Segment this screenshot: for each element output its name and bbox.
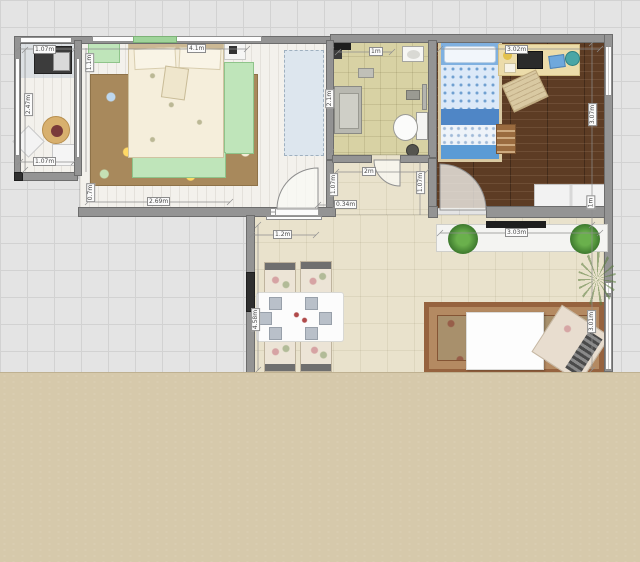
sink-basin: [407, 50, 420, 59]
desk-papers: [504, 63, 516, 73]
wall-bath-bottom-right: [400, 155, 430, 163]
double-bed[interactable]: [128, 40, 224, 158]
kids-bed-duvet: [441, 65, 499, 109]
wall-bath-kids: [428, 40, 437, 158]
dim-label-balcony-top: 1.07m: [33, 45, 56, 54]
kitchen-sink: [53, 52, 70, 71]
wall-kids-bottom-stub: [428, 206, 438, 218]
curtain-strip: [133, 36, 177, 43]
placemat: [259, 312, 272, 325]
dim-label-wall-gap: 0.34m: [334, 200, 357, 209]
dim-label-bath-width: 1m: [369, 47, 383, 56]
dim-label-living-wall: 4.58m: [251, 308, 260, 331]
wall-top-right: [330, 34, 612, 43]
dim-label-divider-top: 1.1m: [85, 53, 94, 72]
divider-window: [76, 58, 80, 158]
bath-cabinet[interactable]: [358, 68, 374, 78]
notebook: [548, 54, 566, 69]
tv[interactable]: [486, 221, 546, 228]
chair-backrest: [301, 364, 331, 371]
wall-dining-left-dark: [246, 272, 255, 312]
bedroom-top-window: [92, 36, 262, 42]
dining-chair-2[interactable]: [300, 261, 332, 295]
chair-backrest: [265, 263, 295, 270]
dim-label-console: 3.03m: [505, 228, 528, 237]
wall-balcony-bottom: [14, 172, 78, 181]
wall-corner-block: [14, 172, 23, 181]
placemat: [269, 297, 282, 310]
placemat: [319, 312, 332, 325]
balcony-top-window: [20, 37, 72, 43]
wall-bath-bottom-left: [332, 155, 372, 163]
kids-bed[interactable]: [438, 38, 502, 162]
dim-label-balcony-height: 2.47m: [24, 93, 33, 116]
kids-bed-pillow: [444, 46, 496, 63]
dim-label-living-height: 3.01m: [587, 310, 596, 333]
dim-label-hall-right: 1.07m: [416, 171, 425, 194]
dining-chair-4[interactable]: [300, 338, 332, 372]
entry-closet-floor: [284, 50, 324, 156]
dim-label-divider-bottom: 0.7m: [86, 183, 95, 202]
kids-bed-band: [441, 109, 499, 125]
kids-right-window: [605, 46, 612, 96]
tall-plant[interactable]: [578, 252, 616, 306]
dim-label-hall-left: 1.07m: [329, 173, 338, 196]
dim-label-bedroom-top: 4.1m: [187, 44, 206, 53]
potted-plant-left[interactable]: [448, 224, 478, 254]
dim-label-corridor: 1.2m: [273, 230, 292, 239]
bedroom-door-leaf[interactable]: [275, 208, 319, 216]
bathroom-sink[interactable]: [402, 46, 424, 62]
bedroom-side-cabinet[interactable]: [224, 62, 254, 154]
bath-shelf[interactable]: [406, 90, 420, 100]
kids-dresser[interactable]: [534, 184, 608, 208]
desk-globe: [565, 51, 580, 66]
balcony-table[interactable]: [42, 116, 70, 144]
shower-inner: [339, 93, 359, 129]
ladder-shelf[interactable]: [496, 124, 516, 154]
table-flower: [51, 125, 63, 137]
window-sill: [266, 216, 322, 220]
dim-label-kids-height: 3.07m: [588, 103, 597, 126]
dim-label-kids-width: 3.02m: [505, 45, 528, 54]
chair-backrest: [301, 262, 331, 269]
kids-bed-foot-band: [441, 145, 499, 159]
bed-tray: [161, 65, 189, 100]
balcony-left-window: [15, 58, 20, 156]
placemat: [269, 327, 282, 340]
floor-plan-canvas: 1.07m 2.47m 1.07m 4.1m 2.69m 1.1m 0.7m 1…: [0, 0, 640, 562]
towel-rail[interactable]: [422, 84, 427, 110]
coffee-table[interactable]: [466, 312, 544, 370]
nightstand-item: [229, 46, 237, 54]
dim-label-right-window: 1m: [586, 196, 595, 210]
potted-plant-right[interactable]: [570, 224, 600, 254]
dim-label-bedroom-bottom: 2.69m: [147, 197, 170, 206]
table-centerpiece: [287, 304, 314, 331]
bath-dark-tile-3: [333, 50, 342, 59]
dim-label-hall-width: 2m: [362, 167, 376, 176]
dining-chair-1[interactable]: [264, 262, 296, 295]
dim-label-bath-height: 2.1m: [325, 89, 334, 108]
unrendered-ground-area: [0, 372, 640, 562]
dining-table[interactable]: [256, 292, 344, 342]
shower-tray[interactable]: [334, 86, 362, 134]
toilet-bowl[interactable]: [393, 114, 418, 141]
dim-label-balcony-bottom: 1.07m: [33, 157, 56, 166]
chair-backrest: [265, 364, 295, 371]
nightstand[interactable]: [224, 42, 246, 60]
living-balcony-door: [605, 296, 612, 370]
kids-bed-sheet: [441, 125, 499, 145]
dining-chair-3[interactable]: [264, 338, 296, 372]
